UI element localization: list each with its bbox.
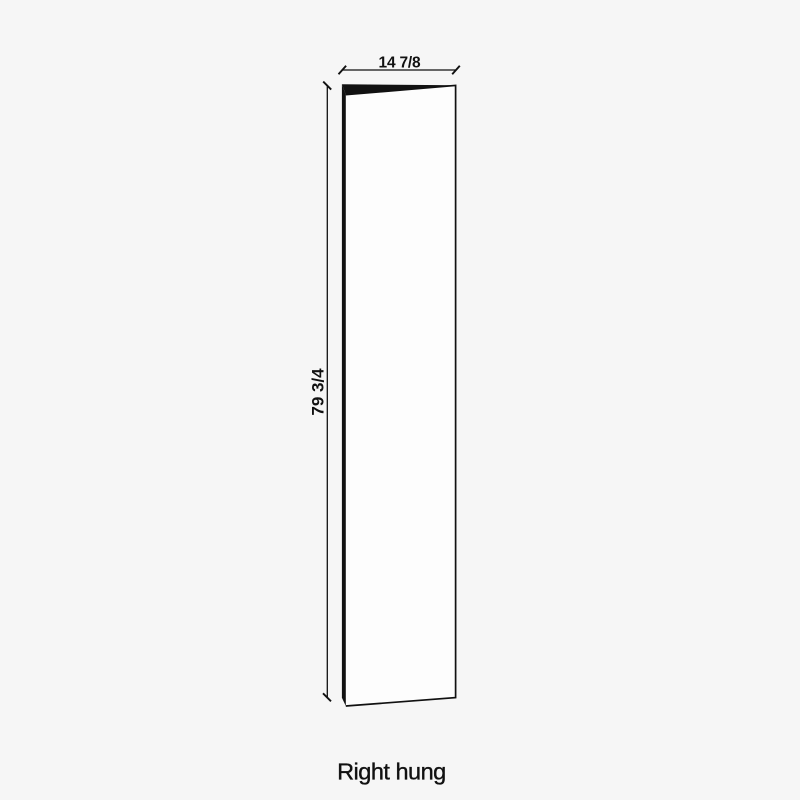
svg-text:Right hung: Right hung xyxy=(337,759,446,785)
svg-text:79 3/4: 79 3/4 xyxy=(309,368,328,416)
svg-text:14 7/8: 14 7/8 xyxy=(379,55,421,72)
